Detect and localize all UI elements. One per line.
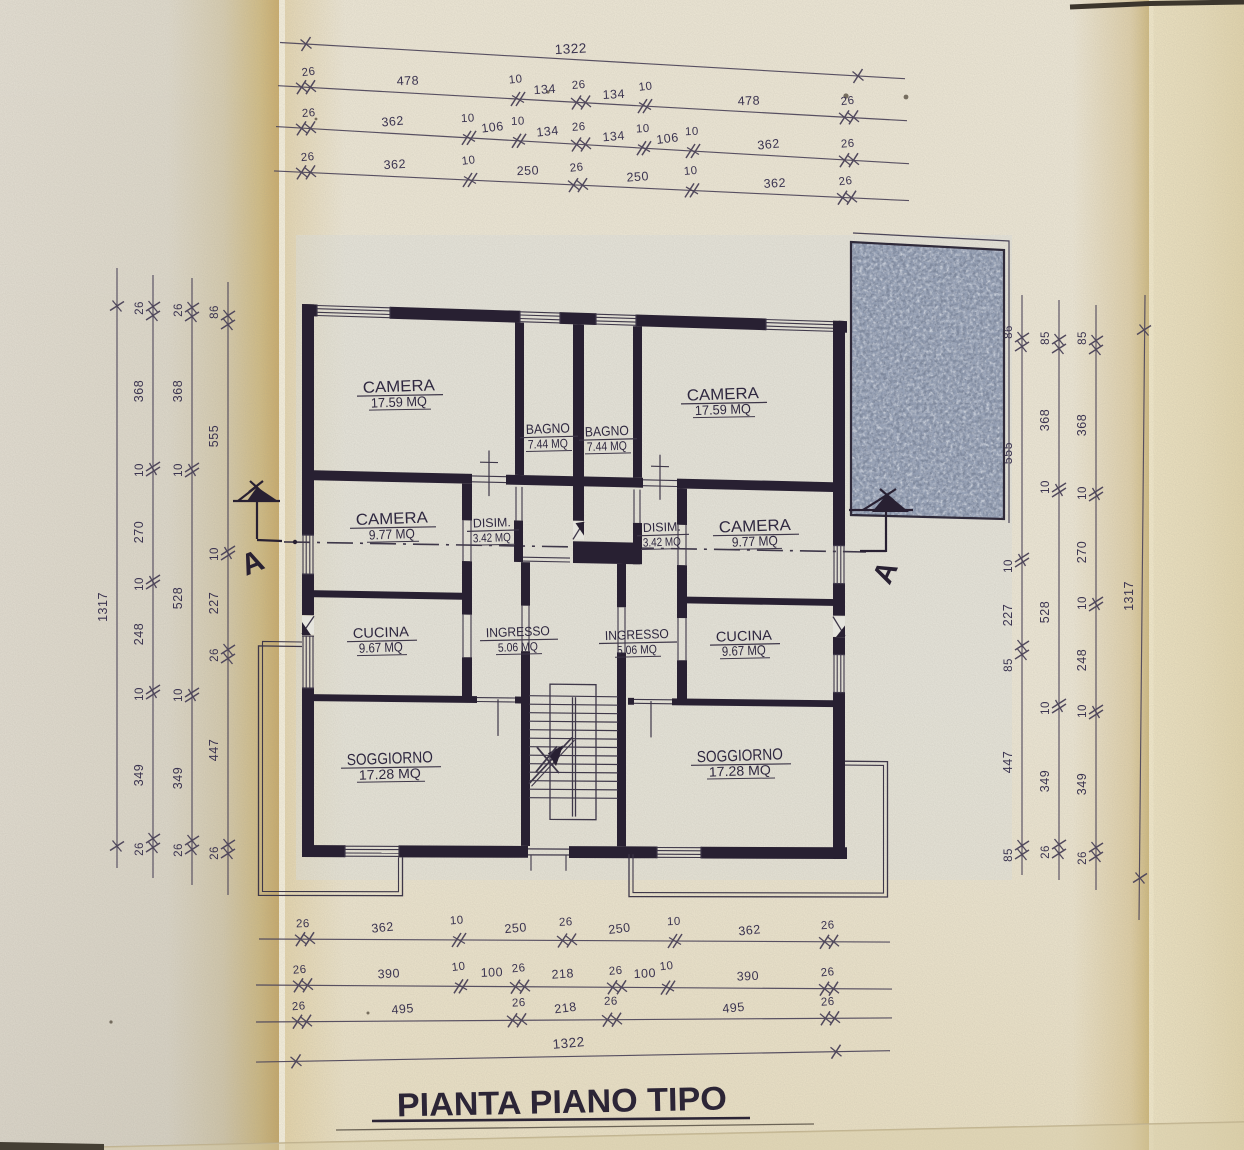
svg-text:9.67 MQ: 9.67 MQ <box>359 639 403 656</box>
svg-text:362: 362 <box>763 176 786 191</box>
svg-text:368: 368 <box>1075 414 1089 436</box>
svg-text:362: 362 <box>381 114 404 130</box>
svg-text:390: 390 <box>736 969 759 984</box>
svg-text:10: 10 <box>511 116 525 128</box>
svg-text:BAGNO: BAGNO <box>585 423 629 440</box>
svg-text:10: 10 <box>461 112 475 125</box>
svg-text:10: 10 <box>1077 704 1089 718</box>
svg-text:PIANTA PIANO TIPO: PIANTA PIANO TIPO <box>396 1080 727 1124</box>
svg-text:10: 10 <box>1077 596 1089 610</box>
svg-text:3.42 MQ: 3.42 MQ <box>643 534 681 549</box>
svg-text:85: 85 <box>1040 331 1052 345</box>
svg-text:26: 26 <box>571 121 586 134</box>
svg-text:26: 26 <box>820 996 835 1009</box>
svg-text:26: 26 <box>820 919 835 932</box>
svg-text:26: 26 <box>300 151 315 164</box>
svg-text:349: 349 <box>132 764 146 786</box>
svg-text:362: 362 <box>757 136 781 152</box>
svg-text:INGRESSO: INGRESSO <box>486 623 550 640</box>
svg-text:10: 10 <box>134 577 146 591</box>
svg-text:134: 134 <box>533 82 556 98</box>
svg-text:BAGNO: BAGNO <box>526 420 570 437</box>
svg-text:DISIM.: DISIM. <box>643 520 681 535</box>
svg-text:26: 26 <box>173 303 185 317</box>
svg-text:10: 10 <box>638 80 653 94</box>
svg-text:248: 248 <box>1075 649 1089 671</box>
svg-text:134: 134 <box>536 123 560 139</box>
svg-text:85: 85 <box>1003 658 1015 672</box>
svg-text:26: 26 <box>1040 845 1052 859</box>
svg-text:495: 495 <box>722 1000 746 1016</box>
svg-text:10: 10 <box>659 960 674 974</box>
svg-text:218: 218 <box>551 966 574 982</box>
svg-text:100: 100 <box>480 965 503 980</box>
svg-text:26: 26 <box>296 918 310 930</box>
svg-text:26: 26 <box>820 966 835 979</box>
svg-text:390: 390 <box>377 966 400 981</box>
svg-text:9.67 MQ: 9.67 MQ <box>722 642 766 659</box>
svg-text:9.77 MQ: 9.77 MQ <box>732 533 778 550</box>
svg-text:134: 134 <box>602 87 625 102</box>
svg-text:250: 250 <box>626 169 649 185</box>
svg-text:26: 26 <box>301 66 316 80</box>
svg-text:349: 349 <box>1075 773 1089 795</box>
svg-text:26: 26 <box>134 301 146 315</box>
svg-text:447: 447 <box>1001 751 1015 773</box>
svg-text:17.28 MQ: 17.28 MQ <box>359 766 421 783</box>
svg-text:26: 26 <box>134 842 146 856</box>
svg-text:1322: 1322 <box>552 1034 585 1052</box>
svg-text:10: 10 <box>134 687 146 701</box>
svg-text:26: 26 <box>569 161 584 174</box>
svg-text:106: 106 <box>656 130 680 147</box>
svg-text:26: 26 <box>209 846 221 860</box>
svg-text:134: 134 <box>602 128 625 144</box>
svg-text:26: 26 <box>291 1000 306 1013</box>
svg-text:7.44 MQ: 7.44 MQ <box>587 439 628 454</box>
svg-text:10: 10 <box>636 123 650 136</box>
svg-text:495: 495 <box>391 1001 414 1017</box>
svg-text:26: 26 <box>840 95 855 108</box>
svg-text:3.42 MQ: 3.42 MQ <box>473 530 511 545</box>
svg-text:10: 10 <box>1040 480 1052 494</box>
svg-text:10: 10 <box>685 126 699 138</box>
svg-text:7.44 MQ: 7.44 MQ <box>528 436 569 451</box>
svg-text:368: 368 <box>171 380 185 402</box>
svg-text:368: 368 <box>1038 409 1052 431</box>
svg-text:250: 250 <box>608 920 632 937</box>
svg-text:INGRESSO: INGRESSO <box>605 626 669 643</box>
svg-text:26: 26 <box>301 107 316 120</box>
svg-text:362: 362 <box>383 157 406 172</box>
svg-text:528: 528 <box>1038 601 1052 623</box>
svg-text:86: 86 <box>209 305 221 319</box>
svg-text:528: 528 <box>171 587 185 609</box>
svg-text:10: 10 <box>683 165 698 178</box>
svg-text:218: 218 <box>554 1000 578 1017</box>
svg-text:10: 10 <box>1077 486 1089 500</box>
svg-text:555: 555 <box>207 425 221 447</box>
svg-text:10: 10 <box>667 916 681 928</box>
svg-text:26: 26 <box>838 175 853 189</box>
svg-text:227: 227 <box>207 592 221 614</box>
svg-text:10: 10 <box>1040 701 1052 715</box>
svg-text:478: 478 <box>396 74 419 89</box>
svg-text:17.59 MQ: 17.59 MQ <box>695 401 751 418</box>
svg-text:85: 85 <box>1003 848 1015 862</box>
svg-text:9.77 MQ: 9.77 MQ <box>369 526 415 543</box>
svg-text:10: 10 <box>209 547 221 561</box>
svg-text:17.59 MQ: 17.59 MQ <box>371 394 427 411</box>
svg-text:270: 270 <box>1075 541 1089 563</box>
svg-text:447: 447 <box>207 739 221 761</box>
svg-text:1317: 1317 <box>1122 581 1136 611</box>
svg-text:26: 26 <box>292 964 307 977</box>
svg-text:10: 10 <box>134 463 146 477</box>
svg-text:DISIM.: DISIM. <box>473 515 511 530</box>
svg-text:10: 10 <box>173 463 185 477</box>
svg-text:26: 26 <box>571 79 586 92</box>
svg-text:10: 10 <box>1003 559 1015 573</box>
svg-text:26: 26 <box>604 995 618 1007</box>
svg-text:5.06 MQ: 5.06 MQ <box>617 642 657 657</box>
svg-text:5.06 MQ: 5.06 MQ <box>498 639 538 654</box>
svg-text:26: 26 <box>209 648 221 662</box>
svg-text:26: 26 <box>559 916 573 929</box>
svg-text:10: 10 <box>449 914 464 927</box>
svg-text:227: 227 <box>1001 604 1015 626</box>
svg-text:10: 10 <box>451 961 466 975</box>
svg-text:85: 85 <box>1077 331 1089 345</box>
svg-text:17.28 MQ: 17.28 MQ <box>709 762 771 779</box>
svg-text:26: 26 <box>1077 851 1089 865</box>
svg-text:1322: 1322 <box>554 40 587 57</box>
svg-text:362: 362 <box>371 919 395 935</box>
svg-text:250: 250 <box>516 163 539 178</box>
svg-text:1317: 1317 <box>96 592 110 622</box>
svg-text:26: 26 <box>173 843 185 857</box>
svg-text:26: 26 <box>608 965 623 978</box>
svg-text:10: 10 <box>461 154 476 168</box>
svg-text:10: 10 <box>173 688 185 702</box>
svg-text:248: 248 <box>132 623 146 645</box>
svg-text:26: 26 <box>511 962 526 975</box>
svg-text:368: 368 <box>132 380 146 402</box>
svg-text:349: 349 <box>1038 770 1052 792</box>
svg-text:106: 106 <box>481 119 505 136</box>
svg-text:100: 100 <box>633 966 656 981</box>
svg-text:362: 362 <box>738 922 762 938</box>
svg-text:250: 250 <box>504 920 527 936</box>
svg-text:349: 349 <box>171 767 185 789</box>
svg-text:270: 270 <box>132 521 146 543</box>
svg-text:10: 10 <box>508 73 523 86</box>
svg-text:26: 26 <box>512 997 526 1010</box>
svg-text:26: 26 <box>840 138 855 151</box>
svg-text:478: 478 <box>737 94 760 109</box>
